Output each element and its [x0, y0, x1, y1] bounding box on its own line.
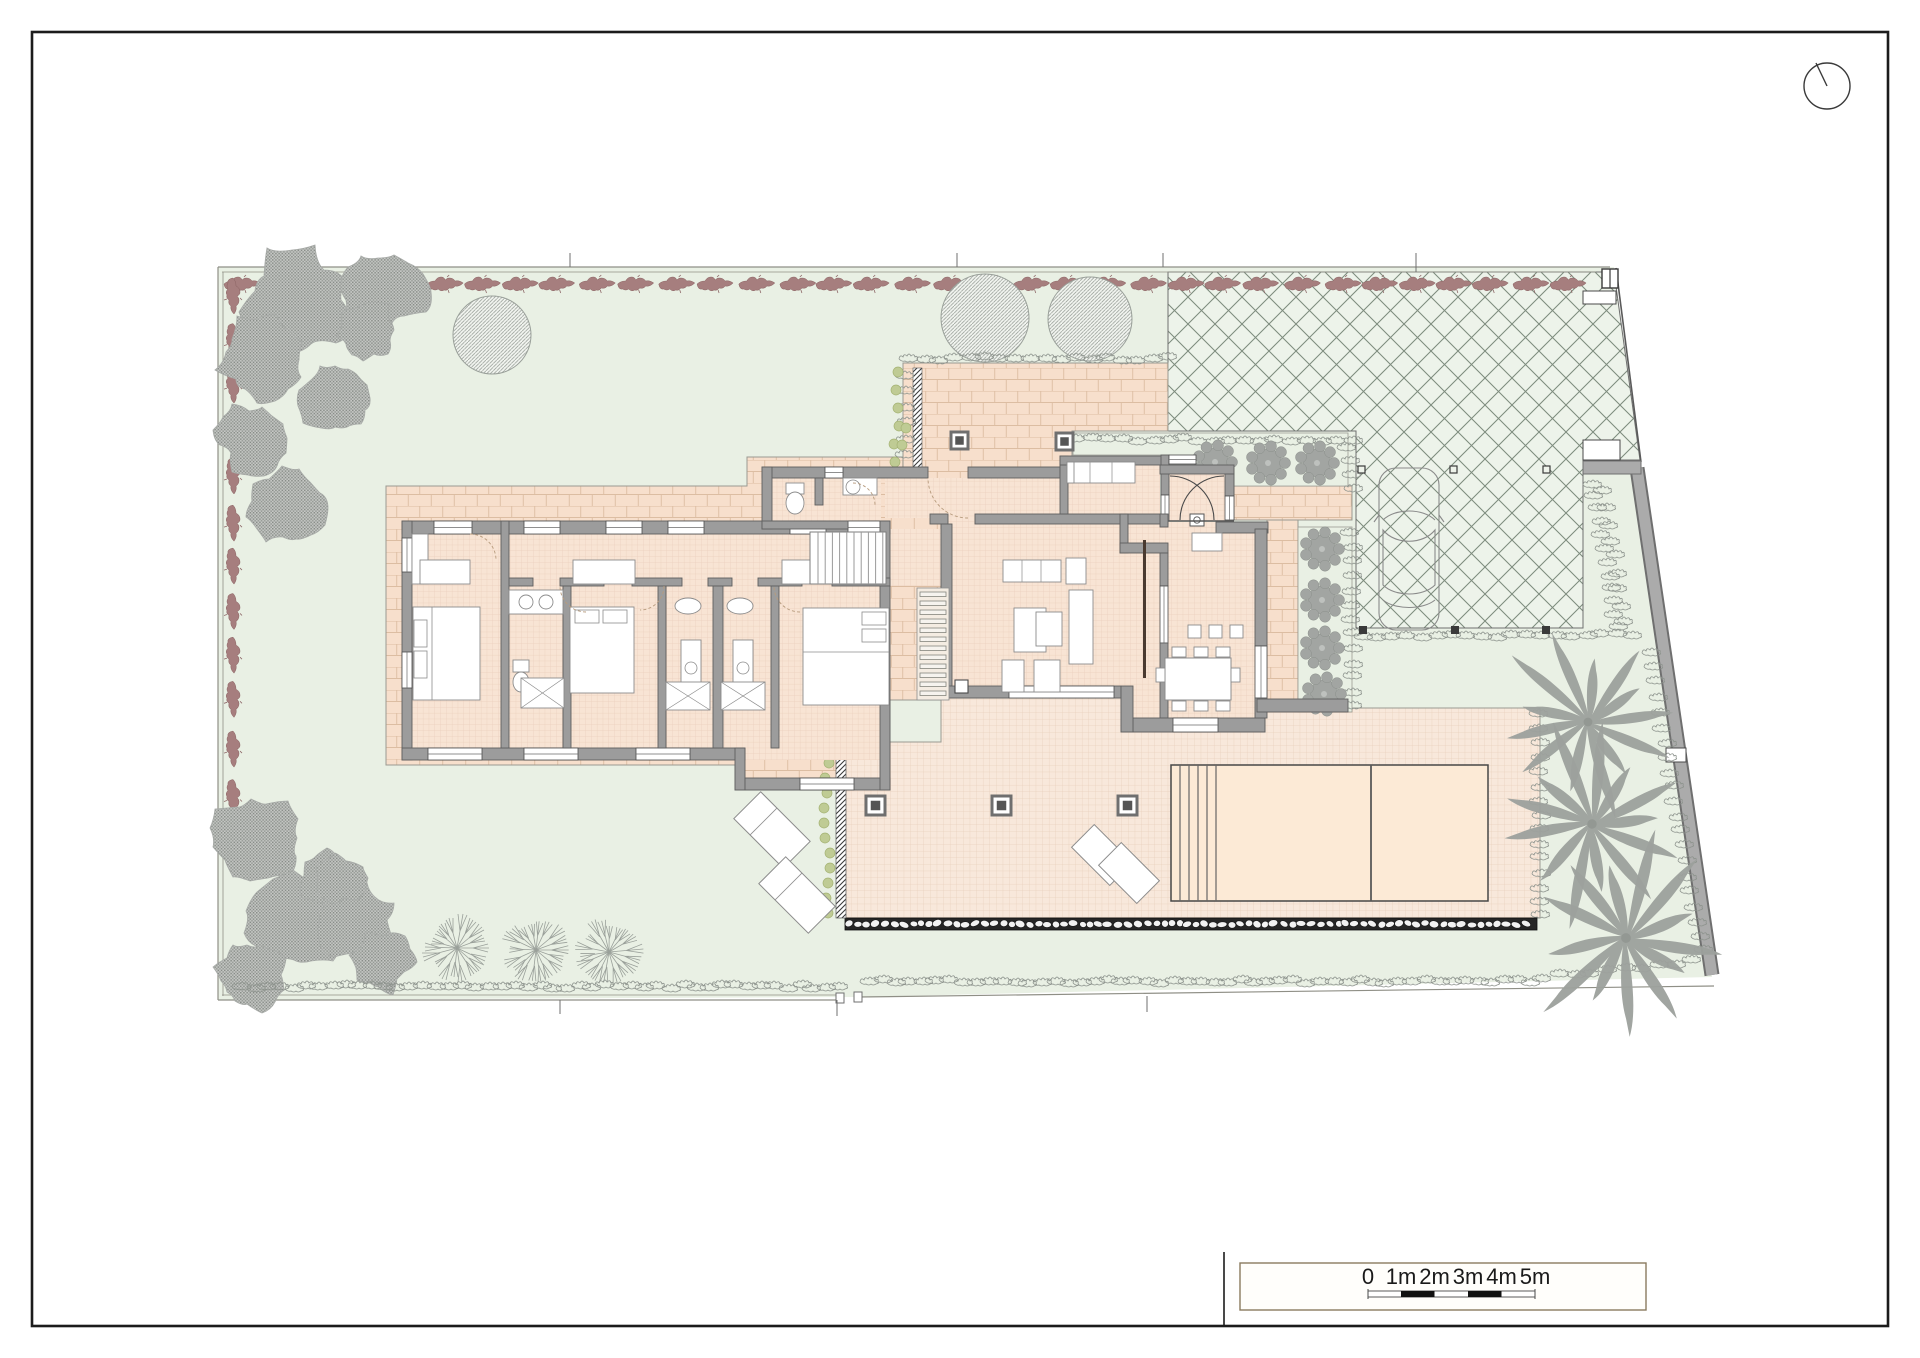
svg-text:5m: 5m: [1520, 1264, 1551, 1289]
svg-text:4m: 4m: [1486, 1264, 1517, 1289]
svg-text:3m: 3m: [1453, 1264, 1484, 1289]
svg-text:0: 0: [1362, 1264, 1374, 1289]
svg-text:2m: 2m: [1419, 1264, 1450, 1289]
svg-text:1m: 1m: [1386, 1264, 1417, 1289]
